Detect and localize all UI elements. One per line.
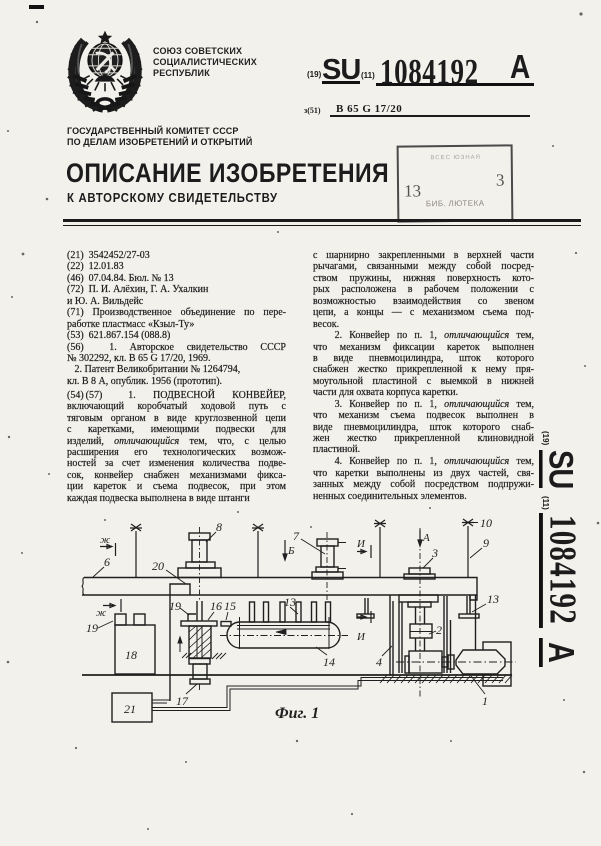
svg-text:7: 7: [293, 529, 300, 543]
svg-text:ж: ж: [96, 607, 107, 619]
svg-text:14: 14: [323, 655, 335, 669]
svg-text:17: 17: [176, 694, 189, 708]
svg-text:13: 13: [284, 595, 296, 609]
svg-text:ж: ж: [100, 534, 111, 546]
svg-text:Фиг. 1: Фиг. 1: [275, 705, 319, 722]
svg-text:21: 21: [124, 702, 136, 716]
svg-text:10: 10: [480, 516, 492, 530]
svg-text:И: И: [356, 631, 366, 643]
svg-text:18: 18: [125, 648, 137, 662]
svg-text:19: 19: [169, 599, 181, 613]
svg-text:И: И: [356, 538, 366, 550]
svg-text:1: 1: [482, 694, 488, 708]
svg-text:4: 4: [376, 655, 382, 669]
svg-text:6: 6: [104, 555, 110, 569]
svg-text:13: 13: [487, 592, 499, 606]
svg-text:15: 15: [224, 599, 236, 613]
svg-text:2: 2: [436, 623, 442, 637]
svg-text:Б: Б: [287, 545, 295, 557]
svg-text:20: 20: [152, 559, 164, 573]
svg-text:3: 3: [431, 546, 438, 560]
svg-text:19: 19: [86, 621, 98, 635]
svg-text:16: 16: [210, 599, 222, 613]
svg-text:9: 9: [483, 536, 489, 550]
svg-text:8: 8: [216, 520, 222, 534]
svg-text:А: А: [422, 532, 430, 544]
